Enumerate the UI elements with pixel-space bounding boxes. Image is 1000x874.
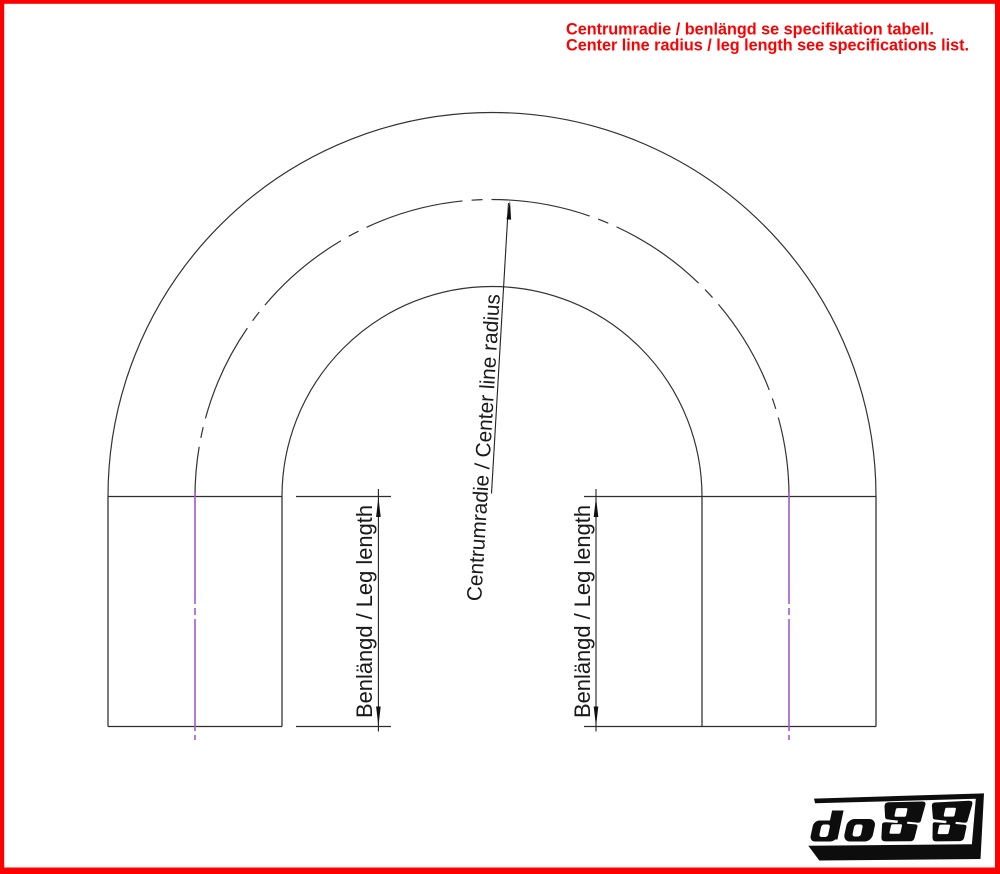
- svg-text:Benlängd / Leg length: Benlängd / Leg length: [570, 505, 595, 718]
- svg-text:Benlängd / Leg length: Benlängd / Leg length: [352, 505, 377, 718]
- svg-text:Center line radius / leg lengt: Center line radius / leg length see spec…: [566, 37, 969, 55]
- svg-text:Centrumradie / benlängd se spe: Centrumradie / benlängd se specifikation…: [566, 20, 934, 38]
